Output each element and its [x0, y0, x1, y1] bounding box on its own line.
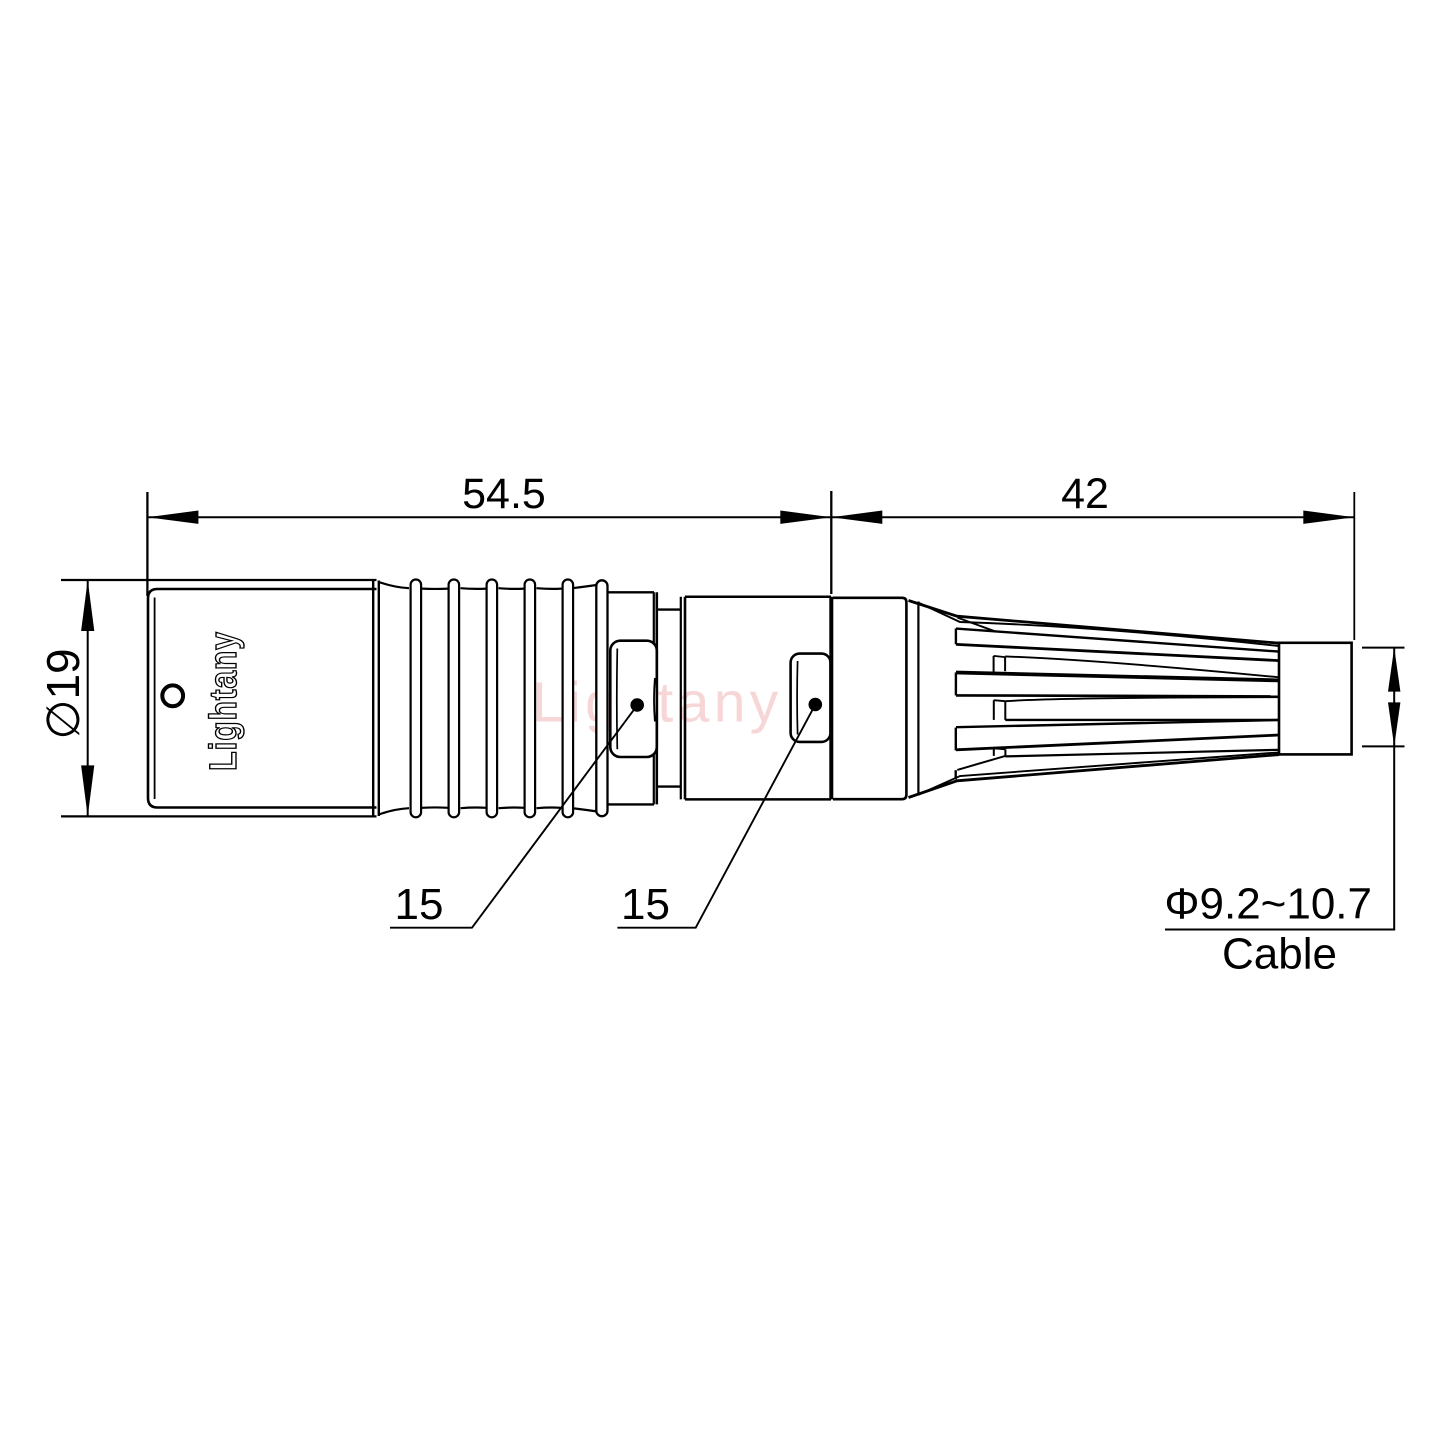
- svg-text:15: 15: [395, 880, 444, 929]
- svg-text:54.5: 54.5: [462, 470, 546, 518]
- svg-text:Lightany: Lightany: [202, 631, 244, 771]
- svg-text:Φ9.2~10.7: Φ9.2~10.7: [1164, 880, 1372, 929]
- svg-text:42: 42: [1061, 470, 1109, 518]
- svg-text:15: 15: [621, 880, 670, 929]
- svg-text:∅19: ∅19: [37, 648, 89, 739]
- svg-text:Cable: Cable: [1222, 930, 1337, 979]
